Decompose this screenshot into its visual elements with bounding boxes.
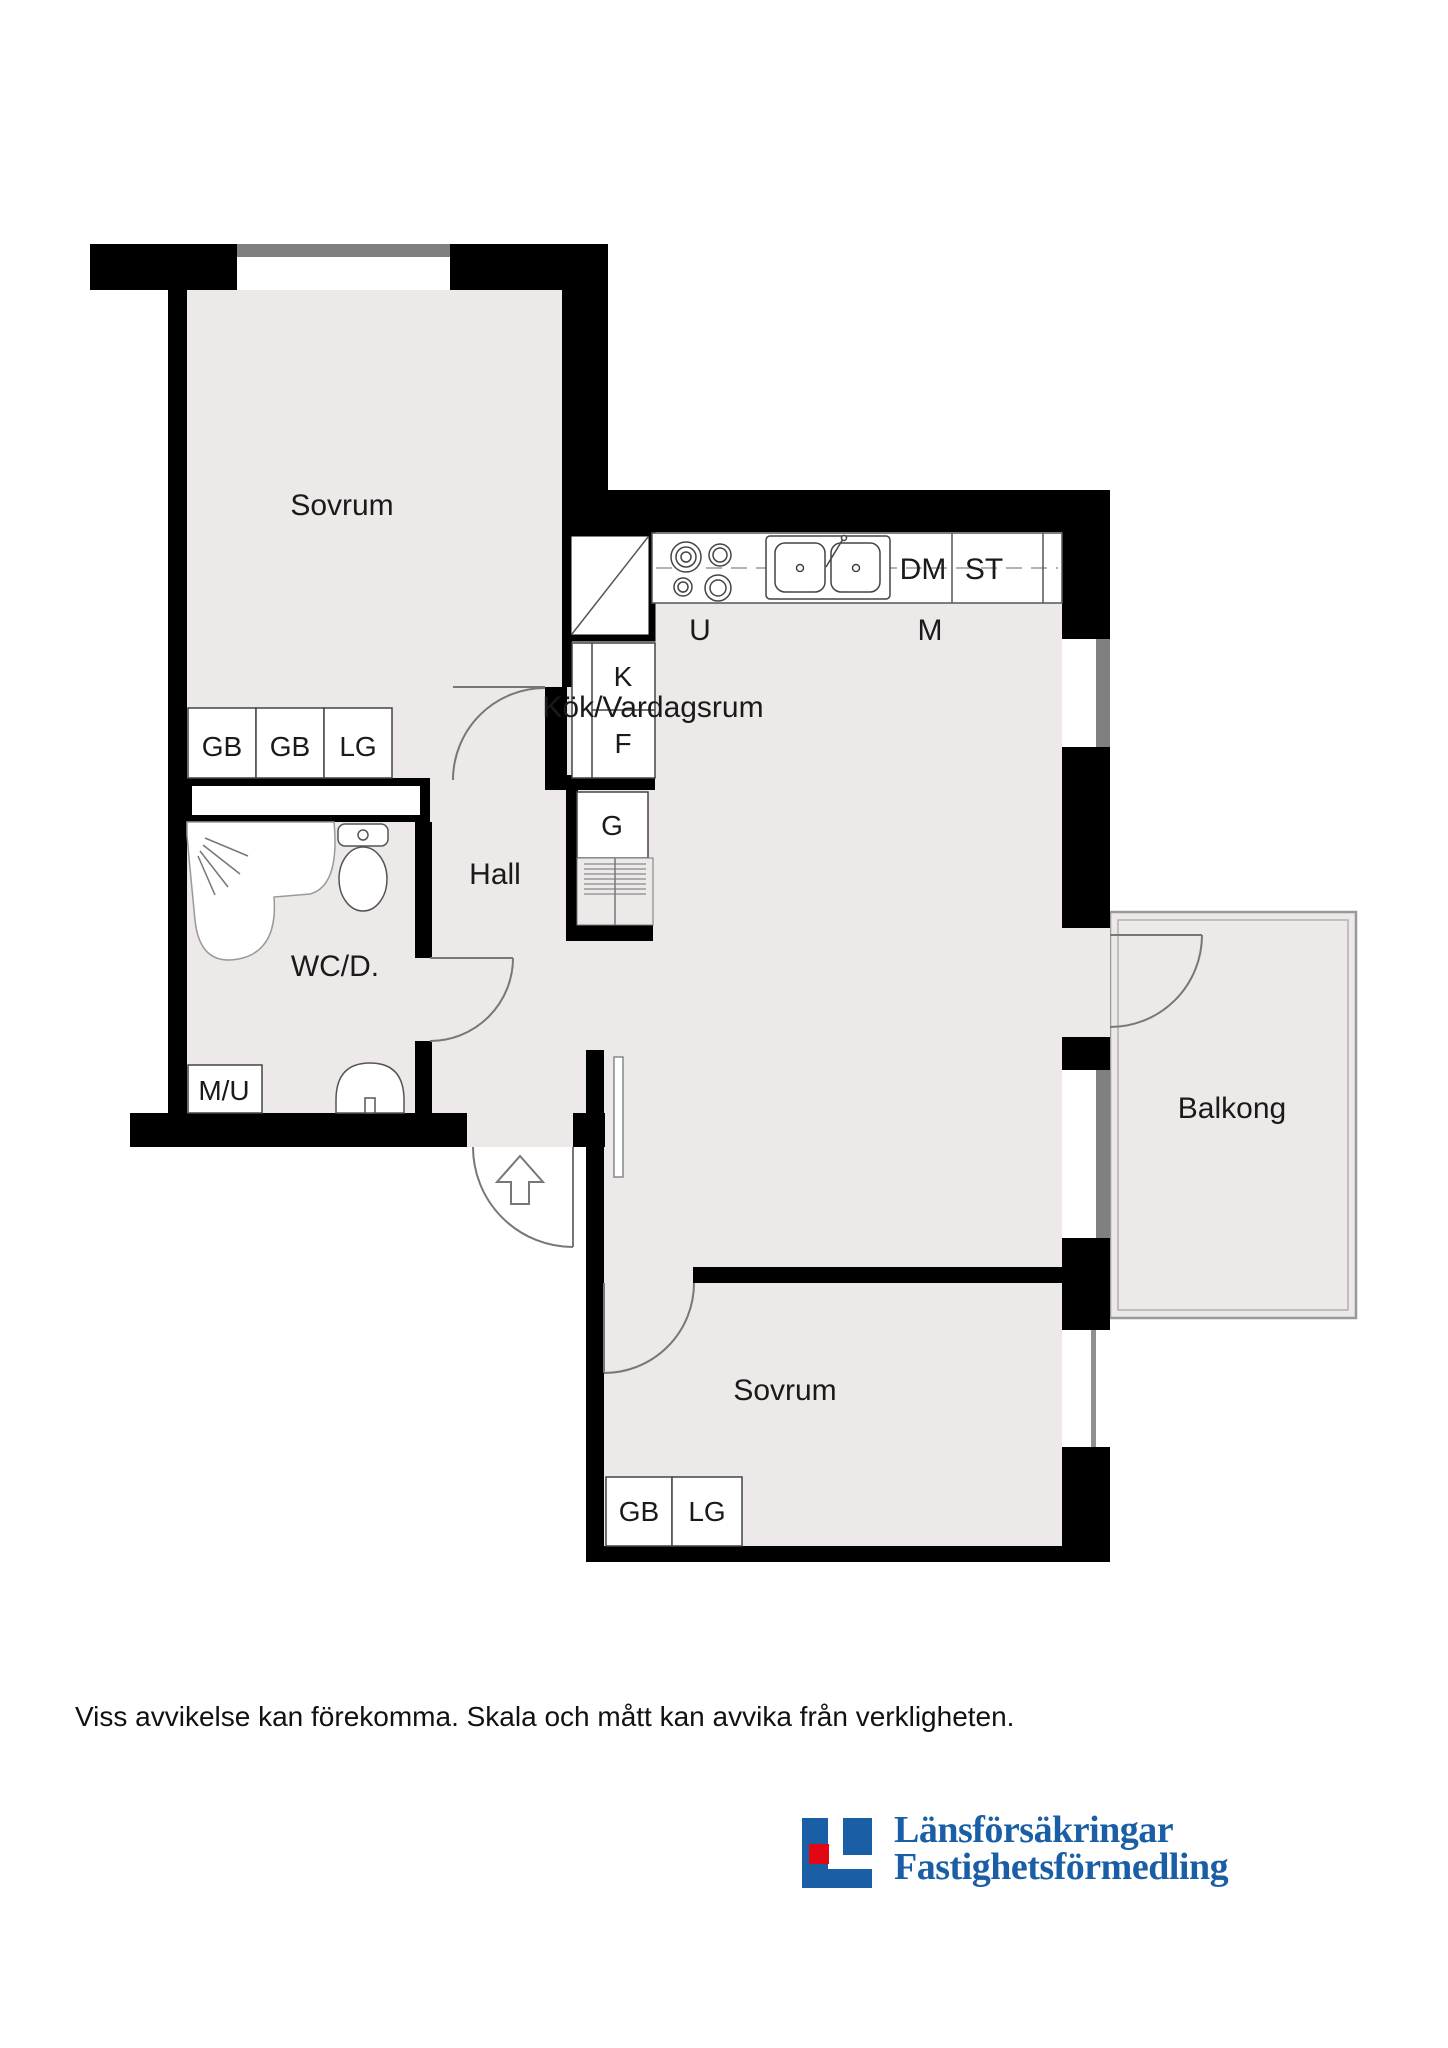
fixture-label-f: F <box>614 728 631 759</box>
sliding-door-leaf <box>614 1057 623 1177</box>
washbasin-icon <box>336 1063 404 1113</box>
fixture-label-lg2: LG <box>688 1496 725 1527</box>
fixture-label-gb1: GB <box>202 731 242 762</box>
fixture-label-st: ST <box>965 553 1003 586</box>
logo-line-2: Fastighetsförmedling <box>894 1849 1228 1886</box>
entry-arrow-icon <box>497 1156 543 1204</box>
fixture-label-u: U <box>689 614 711 647</box>
room-label-hall: Hall <box>469 858 521 891</box>
room-label-balcony: Balkong <box>1178 1092 1286 1125</box>
floor-plan: Sovrum Kök/Vardagsrum Hall WC/D. Balkong… <box>0 0 1448 2048</box>
floorplan-page: Sovrum Kök/Vardagsrum Hall WC/D. Balkong… <box>0 0 1448 2048</box>
sink-icon <box>766 536 890 600</box>
door-entry <box>473 1147 573 1247</box>
window-bedroom-bottom <box>1062 1330 1110 1447</box>
pocket-door-inset <box>192 786 420 815</box>
room-label-kitchen-living: Kök/Vardagsrum <box>542 691 763 724</box>
logo-line-1: Länsförsäkringar <box>894 1812 1228 1849</box>
toilet-icon <box>338 824 388 911</box>
window-bedroom-top <box>237 244 450 290</box>
room-label-bathroom: WC/D. <box>291 950 379 983</box>
fixture-label-gb2: GB <box>270 731 310 762</box>
logo-mark-icon <box>802 1818 872 1888</box>
window-kitchen-right <box>1062 639 1110 747</box>
window-livingroom-balcony <box>1062 1070 1110 1238</box>
company-logo: Länsförsäkringar Fastighetsförmedling <box>802 1818 1228 1888</box>
fixture-label-dm: DM <box>900 553 947 586</box>
room-label-bedroom-bottom: Sovrum <box>733 1374 836 1407</box>
logo-text: Länsförsäkringar Fastighetsförmedling <box>894 1812 1228 1886</box>
fixture-label-gb3: GB <box>619 1496 659 1527</box>
fixture-label-g: G <box>601 810 623 841</box>
shaft-box <box>568 533 652 638</box>
room-label-bedroom-top: Sovrum <box>290 489 393 522</box>
fixture-label-k: K <box>614 661 633 692</box>
fixture-label-lg1: LG <box>339 731 376 762</box>
fixture-label-mu: M/U <box>198 1075 249 1106</box>
disclaimer-text: Viss avvikelse kan förekomma. Skala och … <box>75 1701 1014 1733</box>
fixture-label-m: M <box>918 614 943 647</box>
